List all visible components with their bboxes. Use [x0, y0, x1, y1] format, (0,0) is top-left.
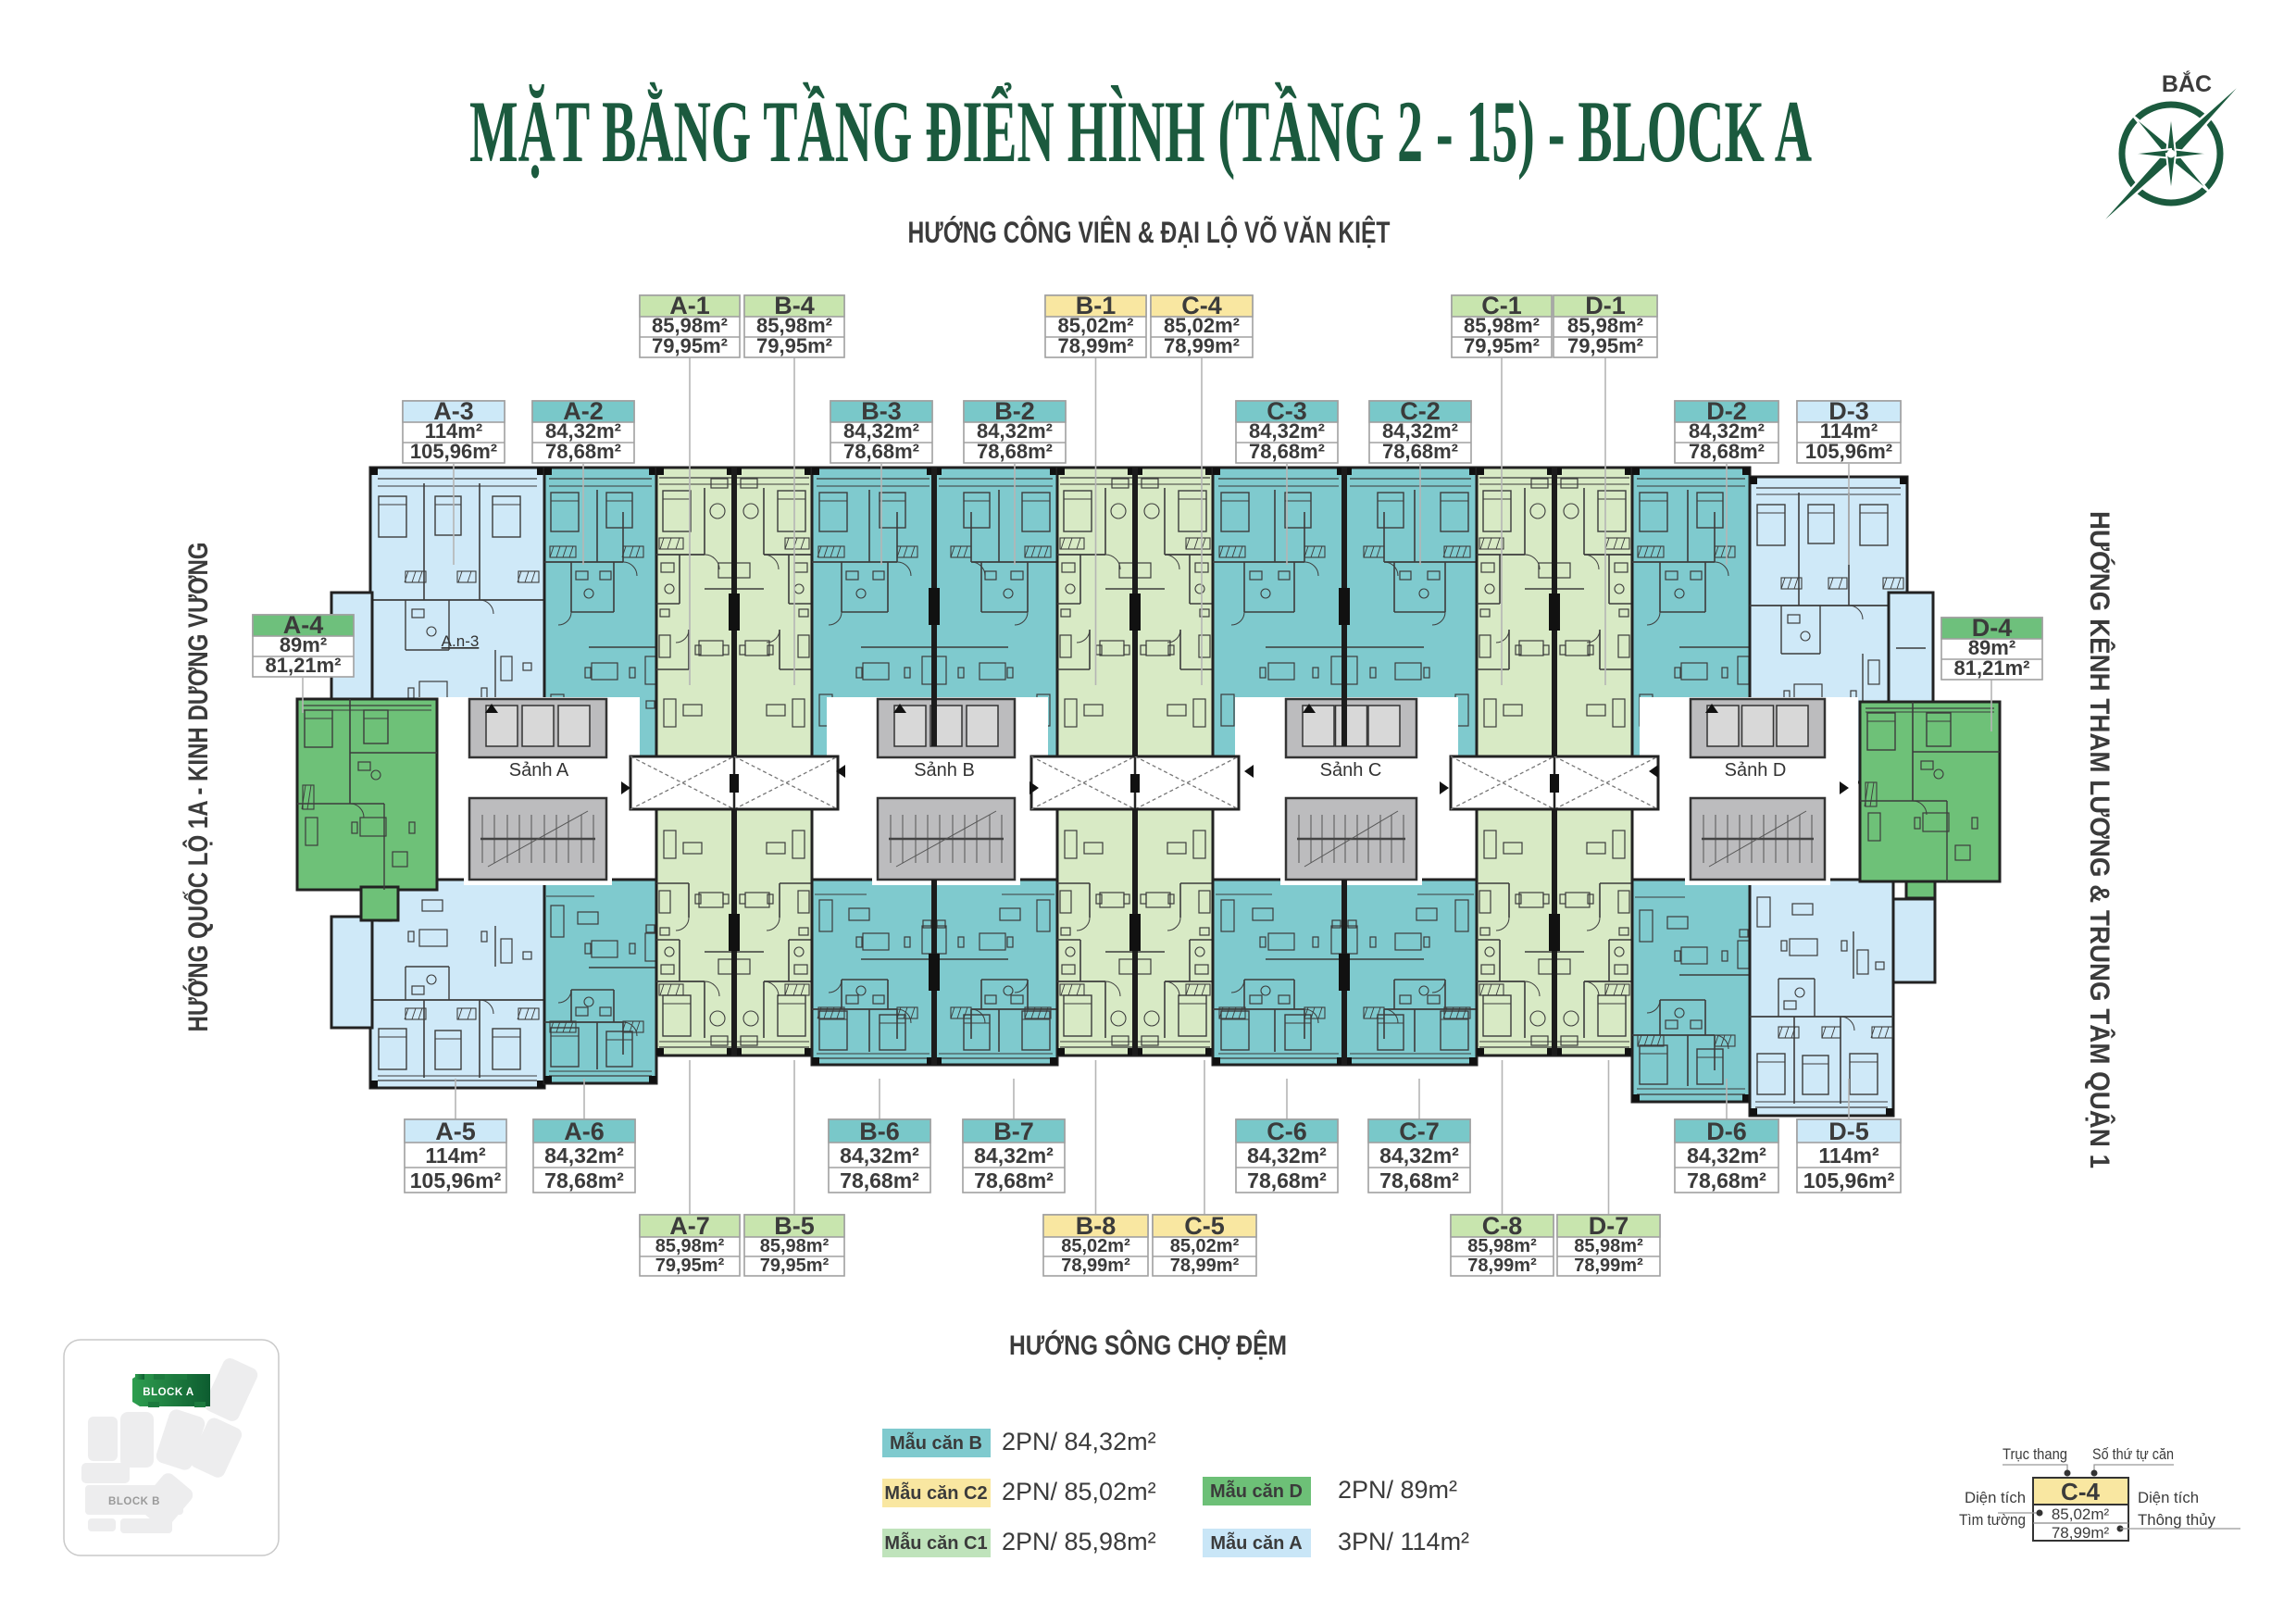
svg-text:81,21m²: 81,21m²: [266, 654, 342, 677]
svg-text:78,68m²: 78,68m²: [1687, 1168, 1766, 1193]
svg-text:79,95m²: 79,95m²: [652, 334, 728, 357]
svg-text:2PN/ 84,32m²: 2PN/ 84,32m²: [1002, 1428, 1156, 1455]
svg-text:78,99m²: 78,99m²: [2052, 1524, 2110, 1542]
svg-text:114m²: 114m²: [425, 1143, 486, 1168]
svg-text:84,32m²: 84,32m²: [974, 1143, 1054, 1168]
svg-text:Thông thủy: Thông thủy: [2138, 1511, 2215, 1529]
svg-text:85,98m²: 85,98m²: [655, 1236, 725, 1256]
svg-text:84,32m²: 84,32m²: [544, 1143, 624, 1168]
svg-text:Mẫu căn A: Mẫu căn A: [1210, 1531, 1302, 1554]
svg-text:Diện tích: Diện tích: [1965, 1489, 2026, 1506]
svg-text:79,95m²: 79,95m²: [760, 1255, 830, 1276]
svg-text:79,95m²: 79,95m²: [1567, 334, 1643, 357]
svg-text:Tìm tường: Tìm tường: [1959, 1511, 2026, 1529]
svg-text:78,68m²: 78,68m²: [974, 1168, 1054, 1193]
svg-text:Mẫu căn D: Mẫu căn D: [1210, 1480, 1303, 1502]
svg-text:78,68m²: 78,68m²: [545, 440, 621, 463]
svg-text:85,02m²: 85,02m²: [2052, 1505, 2110, 1523]
svg-text:78,68m²: 78,68m²: [1382, 440, 1458, 463]
svg-text:B-7: B-7: [993, 1118, 1034, 1145]
svg-text:Sảnh C: Sảnh C: [1320, 760, 1382, 781]
svg-text:78,99m²: 78,99m²: [1164, 334, 1240, 357]
svg-text:Mẫu căn C2: Mẫu căn C2: [884, 1481, 987, 1504]
svg-text:105,96m²: 105,96m²: [410, 1168, 502, 1193]
svg-text:HƯỚNG SÔNG CHỢ ĐỆM: HƯỚNG SÔNG CHỢ ĐỆM: [1009, 1330, 1287, 1361]
svg-text:84,32m²: 84,32m²: [1247, 1143, 1327, 1168]
svg-text:Mẫu căn C1: Mẫu căn C1: [884, 1531, 987, 1554]
svg-text:79,95m²: 79,95m²: [1464, 334, 1540, 357]
svg-text:79,95m²: 79,95m²: [756, 334, 832, 357]
svg-text:2PN/ 85,02m²: 2PN/ 85,02m²: [1002, 1478, 1156, 1505]
svg-text:BẮC: BẮC: [2162, 69, 2212, 97]
svg-text:Diện tích: Diện tích: [2138, 1489, 2199, 1506]
svg-text:78,99m²: 78,99m²: [1467, 1255, 1537, 1276]
svg-text:HƯỚNG QUỐC LỘ 1A - KINH DƯƠNG: HƯỚNG QUỐC LỘ 1A - KINH DƯƠNG VƯƠNG: [182, 543, 214, 1032]
svg-text:81,21m²: 81,21m²: [1954, 656, 2030, 680]
svg-text:78,68m²: 78,68m²: [843, 440, 919, 463]
svg-text:D-5: D-5: [1828, 1118, 1869, 1145]
svg-text:A-5: A-5: [435, 1118, 476, 1145]
svg-text:3PN/ 114m²: 3PN/ 114m²: [1338, 1528, 1469, 1555]
svg-text:Sảnh A: Sảnh A: [509, 760, 569, 781]
svg-text:HƯỚNG KÊNH THAM LƯƠNG & TRUNG: HƯỚNG KÊNH THAM LƯƠNG & TRUNG TÂM QUẬN 1: [2084, 511, 2115, 1168]
svg-text:78,99m²: 78,99m²: [1061, 1255, 1130, 1276]
svg-text:84,32m²: 84,32m²: [1379, 1143, 1459, 1168]
svg-text:BLOCK A: BLOCK A: [143, 1387, 193, 1398]
svg-text:78,68m²: 78,68m²: [840, 1168, 919, 1193]
svg-text:Sảnh B: Sảnh B: [914, 760, 975, 781]
svg-text:78,99m²: 78,99m²: [1058, 334, 1134, 357]
svg-text:Mẫu căn B: Mẫu căn B: [890, 1431, 982, 1454]
svg-text:78,68m²: 78,68m²: [1247, 1168, 1327, 1193]
svg-text:78,68m²: 78,68m²: [1249, 440, 1325, 463]
svg-text:85,02m²: 85,02m²: [1061, 1236, 1130, 1256]
svg-text:78,99m²: 78,99m²: [1170, 1255, 1240, 1276]
svg-text:114m²: 114m²: [1818, 1143, 1879, 1168]
svg-text:D-6: D-6: [1706, 1118, 1747, 1145]
svg-text:MẶT BẰNG TẦNG ĐIỂN HÌNH (TẦNG: MẶT BẰNG TẦNG ĐIỂN HÌNH (TẦNG 2 - 15) - …: [469, 81, 1812, 181]
svg-text:C-7: C-7: [1399, 1118, 1440, 1145]
svg-text:84,32m²: 84,32m²: [840, 1143, 919, 1168]
svg-text:78,99m²: 78,99m²: [1574, 1255, 1643, 1276]
svg-text:A-6: A-6: [564, 1118, 605, 1145]
svg-text:Sảnh D: Sảnh D: [1725, 760, 1787, 781]
svg-text:C-6: C-6: [1267, 1118, 1307, 1145]
svg-text:105,96m²: 105,96m²: [1803, 1168, 1895, 1193]
svg-text:C-4: C-4: [2061, 1478, 2100, 1505]
svg-text:78,68m²: 78,68m²: [1379, 1168, 1459, 1193]
svg-text:85,98m²: 85,98m²: [1574, 1236, 1643, 1256]
svg-text:105,96m²: 105,96m²: [1805, 440, 1892, 463]
svg-text:HƯỚNG CÔNG VIÊN & ĐẠI LỘ VÕ VĂ: HƯỚNG CÔNG VIÊN & ĐẠI LỘ VÕ VĂN KIỆT: [908, 216, 1391, 249]
svg-text:78,68m²: 78,68m²: [544, 1168, 624, 1193]
svg-text:2PN/ 85,98m²: 2PN/ 85,98m²: [1002, 1528, 1156, 1555]
svg-text:2PN/ 89m²: 2PN/ 89m²: [1338, 1476, 1457, 1504]
svg-text:84,32m²: 84,32m²: [1687, 1143, 1766, 1168]
svg-text:78,68m²: 78,68m²: [1689, 440, 1765, 463]
svg-text:BLOCK B: BLOCK B: [108, 1496, 160, 1507]
svg-text:85,98m²: 85,98m²: [760, 1236, 830, 1256]
svg-text:78,68m²: 78,68m²: [977, 440, 1053, 463]
svg-text:85,02m²: 85,02m²: [1170, 1236, 1240, 1256]
svg-text:105,96m²: 105,96m²: [410, 440, 497, 463]
svg-text:85,98m²: 85,98m²: [1467, 1236, 1537, 1256]
svg-text:B-6: B-6: [859, 1118, 900, 1145]
svg-text:A.n-3: A.n-3: [442, 632, 480, 650]
svg-text:Số thứ tự căn: Số thứ tự căn: [2092, 1445, 2174, 1463]
svg-text:Trục thang: Trục thang: [2003, 1445, 2067, 1463]
svg-text:79,95m²: 79,95m²: [655, 1255, 725, 1276]
